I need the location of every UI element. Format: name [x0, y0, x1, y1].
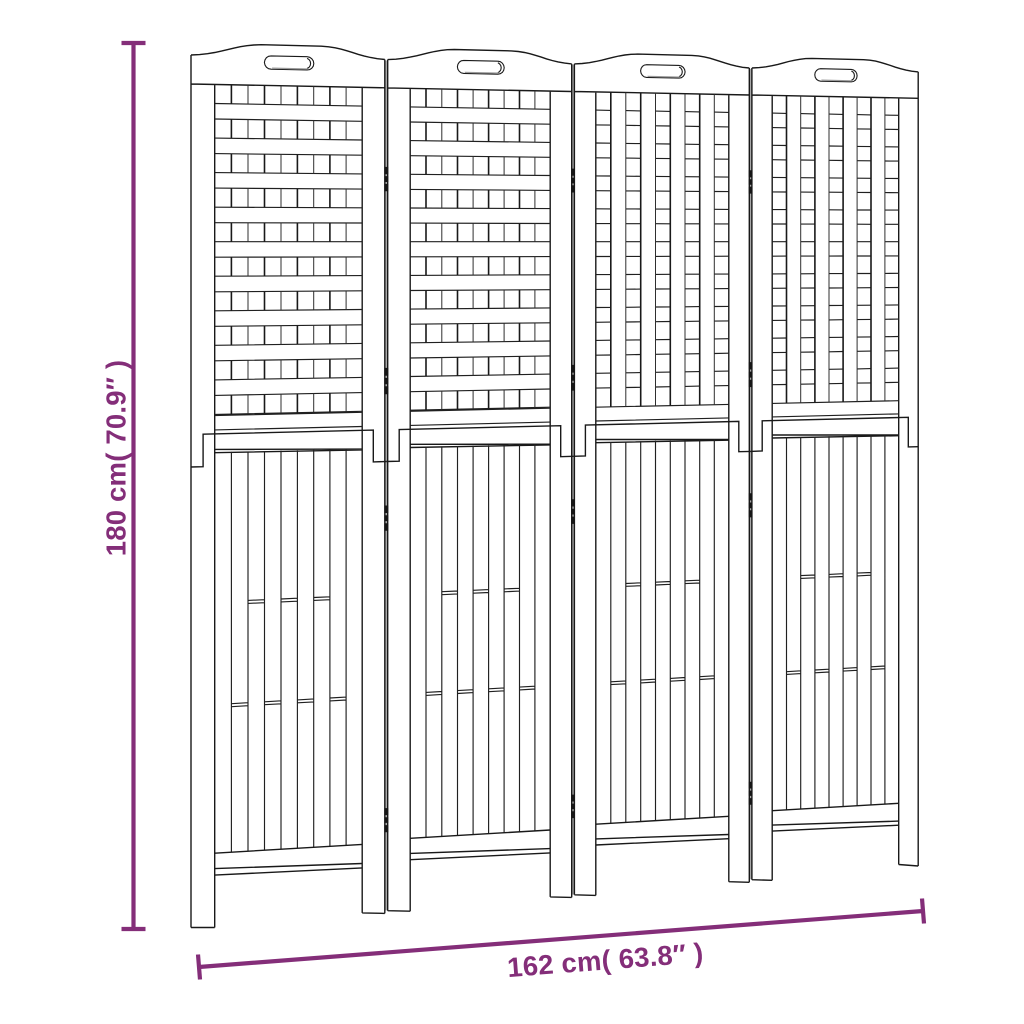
svg-text:180 cm( 70.9″ ): 180 cm( 70.9″ ) — [101, 360, 132, 557]
